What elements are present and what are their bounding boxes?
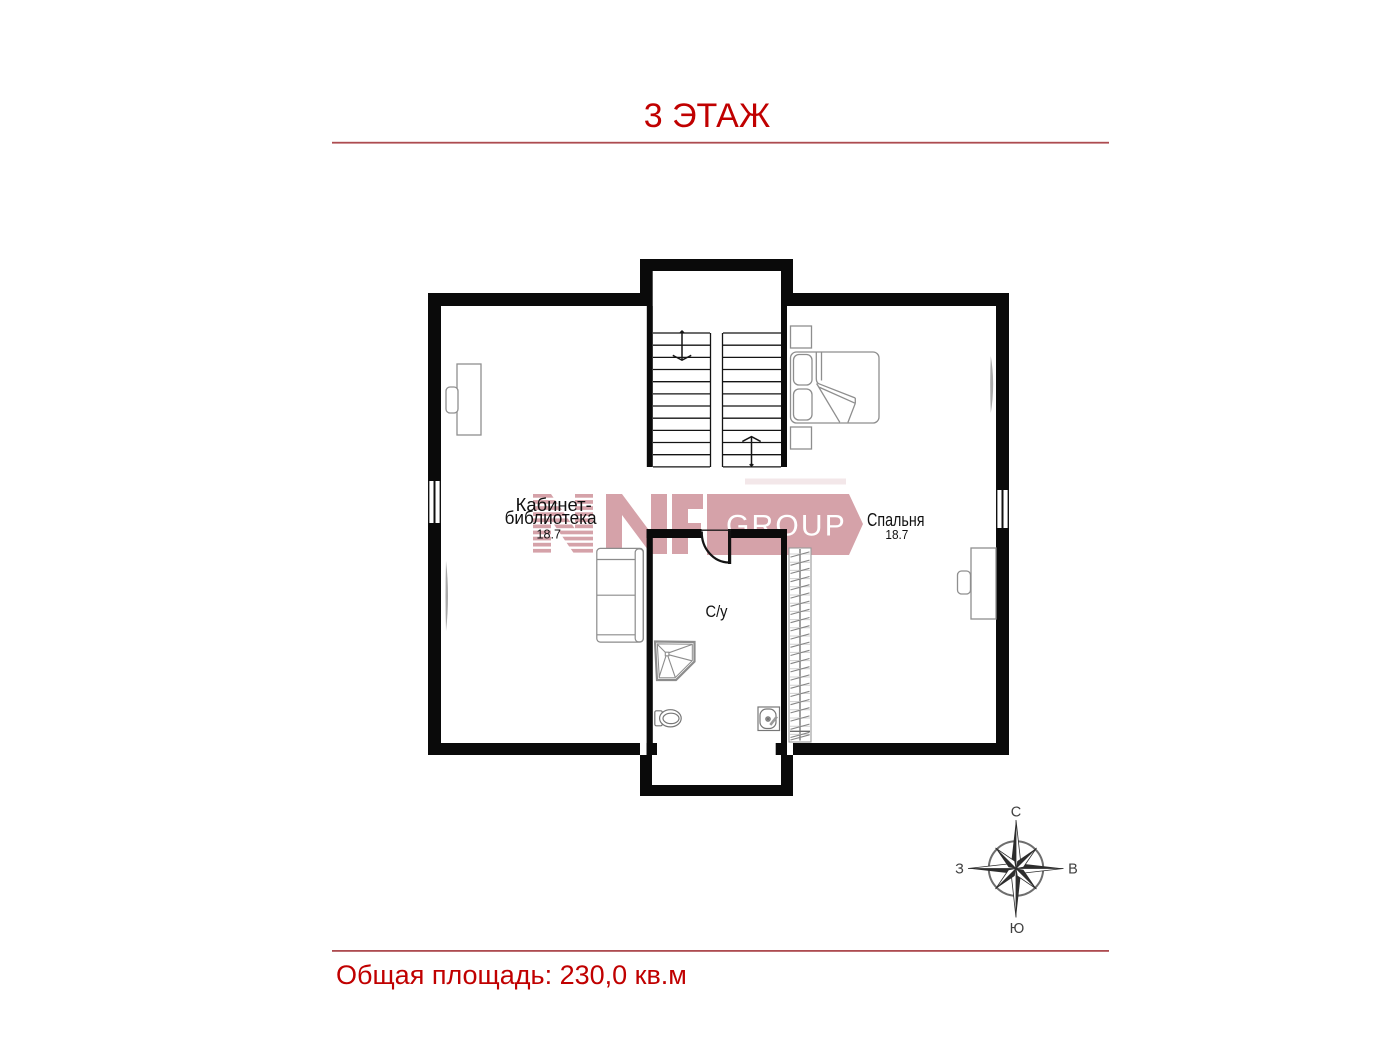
svg-text:3 ЭТАЖ: 3 ЭТАЖ bbox=[644, 97, 771, 135]
svg-text:Общая площадь: 230,0 кв.м: Общая площадь: 230,0 кв.м bbox=[336, 960, 687, 990]
svg-text:18.7: 18.7 bbox=[537, 527, 562, 542]
svg-text:С: С bbox=[1011, 805, 1021, 821]
svg-text:18.7: 18.7 bbox=[885, 527, 908, 542]
svg-text:Ю: Ю bbox=[1010, 921, 1025, 937]
svg-text:З: З bbox=[955, 862, 964, 878]
svg-text:библиотека: библиотека bbox=[505, 508, 598, 528]
svg-text:В: В bbox=[1068, 862, 1078, 878]
svg-text:С/у: С/у bbox=[706, 602, 728, 621]
